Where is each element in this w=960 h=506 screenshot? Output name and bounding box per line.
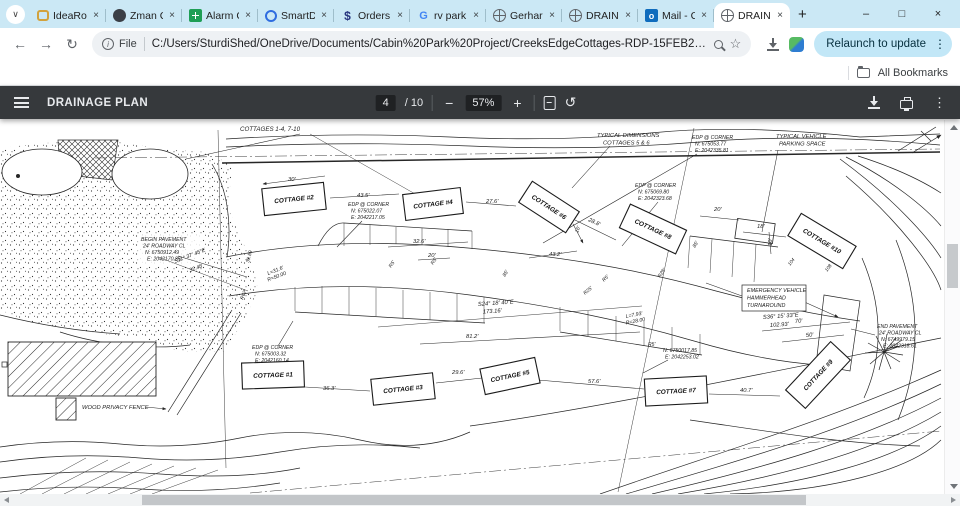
plan-annotation: 29.6' [451,370,465,376]
plan-annotation: R25' [582,285,594,297]
tab-title: Alarm C [206,10,239,22]
tab-search-button[interactable]: ∨ [6,5,25,24]
tab-drain[interactable]: DRAIN× [562,3,638,28]
pdf-document-title: DRAINAGE PLAN [47,97,148,109]
cottage-cottage2: COTTAGE #2 [262,182,326,215]
pdf-actions: ⋮ [868,95,946,111]
tab-title: DRAIN [586,10,619,22]
relaunch-label: Relaunch to update [826,38,926,50]
tab-rv-park[interactable]: Grv park× [410,3,486,28]
plan-annotation: COTTAGES 5 & 6 [603,141,650,147]
bookmark-star-icon[interactable]: ☆ [730,36,742,52]
info-icon: i [102,38,114,50]
plan-annotation: TYPICAL DIMENSIONS [597,133,660,139]
plan-annotation: E: 2042323.68 [638,196,672,202]
spreadsheet-favicon [189,9,202,22]
plan-annotation: 108 [824,263,834,273]
plan-annotation: 24' ROADWAY CL [878,331,922,337]
cottage-cottage1: COTTAGE #1 [242,361,305,389]
tab-title: IdeaRo [53,10,87,22]
all-bookmarks-button[interactable]: All Bookmarks [878,67,948,79]
tab-close-icon[interactable]: × [167,10,177,21]
chevron-down-icon: ∨ [12,9,19,20]
bookmarks-bar: All Bookmarks [0,60,960,86]
new-tab-button[interactable]: + [798,6,807,23]
bookmarks-divider [848,66,849,80]
tab-close-icon[interactable]: × [243,10,253,21]
pdf-page-controls: 4 / 10 − 57% + ↺ [376,94,577,111]
plan-annotation: 81.2' [466,334,479,340]
plan-annotation: 24' ROADWAY CL [142,244,186,250]
terrain-left [0,140,258,352]
tab-close-icon[interactable]: × [91,10,101,21]
toolbar-divider [432,95,433,111]
scroll-right-arrow-icon[interactable] [951,497,956,503]
cottage-cottage10: COTTAGE #10 [788,213,856,268]
forward-button[interactable]: → [34,32,58,56]
plan-annotation: 85' [502,268,511,278]
drainage-plan-drawing: COTTAGE #1COTTAGE #2COTTAGE #3COTTAGE #4… [0,120,944,494]
plan-annotation: N: 6749979.15 [881,337,915,343]
globe-favicon [569,9,582,22]
cottage-cottage7: COTTAGE #7 [644,376,707,406]
search-icon[interactable] [714,40,723,49]
plan-annotation: N: 675022.07 [351,209,383,215]
plan-annotation: 27.6' [485,199,499,205]
plan-annotation: 50' [806,332,815,339]
tab-title: Orders [358,10,391,22]
minimize-button[interactable]: – [848,0,884,28]
back-button[interactable]: ← [8,32,32,56]
plan-annotation: EDP @ CORNER [252,345,293,351]
plan-annotation: R28' [657,267,668,280]
pdf-download-icon[interactable] [868,96,880,109]
plan-annotation: COTTAGES 1-4, 7-10 [240,126,301,133]
print-icon[interactable] [900,100,913,109]
plan-annotation: S24° 18' 40"E [478,300,514,308]
plan-annotation: 40.7' [740,388,753,394]
plan-annotation: 85' [692,239,701,249]
chat-favicon [37,10,49,21]
plan-annotation: R5' [388,259,398,269]
tab-close-icon[interactable]: × [319,10,329,21]
plan-annotation: TYPICAL VEHICLE [776,134,827,140]
tab-close-icon[interactable]: × [775,10,785,21]
plan-annotation: E: 2042335.81 [695,148,729,154]
tab-close-icon[interactable]: × [471,10,481,21]
cottage-cottage5: COTTAGE #5 [480,357,540,394]
plan-annotation: N: 6750912.49 [145,250,179,256]
scheme-label: File [119,38,137,50]
tab-title: DRAIN [738,10,771,22]
toolbar-divider [534,95,535,111]
plan-annotation: 30' [288,177,296,183]
url-text[interactable]: C:/Users/SturdiShed/OneDrive/Documents/C… [152,38,707,50]
plan-annotation: 36.3' [323,386,336,392]
chip-divider [144,37,145,51]
plan-annotation: 16' [574,225,582,234]
scroll-up-arrow-icon[interactable] [950,125,958,130]
tab-mail-c[interactable]: oMail - C× [638,3,714,28]
page-number-input[interactable]: 4 [376,95,396,111]
rotate-icon[interactable]: ↺ [565,94,577,111]
plan-annotation: 104 [787,257,797,267]
fit-to-page-icon[interactable] [544,96,556,110]
maximize-button[interactable]: □ [884,0,920,28]
vertical-scrollbar-thumb[interactable] [947,244,958,288]
plan-annotation: 43.5' [357,193,370,199]
plan-annotation: 70' [795,318,804,325]
tab-title: Mail - C [662,10,695,22]
tab-smartd[interactable]: SmartD× [258,3,334,28]
outlook-favicon: o [645,9,658,22]
vertical-scrollbar[interactable] [944,120,960,494]
svg-text:COTTAGE #1: COTTAGE #1 [253,371,293,379]
plan-annotation: 20' [713,207,722,213]
horizontal-scrollbar-thumb[interactable] [142,495,806,505]
tab-drain[interactable]: DRAIN× [714,3,790,28]
tab-idearo[interactable]: IdeaRo× [30,3,106,28]
tab-gerhar[interactable]: Gerhar× [486,3,562,28]
cottage-cottage6: COTTAGE #6 [519,181,580,232]
plan-annotation: 102.93' [770,322,790,329]
plan-annotation: 32.6' [413,239,426,245]
browser-toolbar: ← → ↻ i File C:/Users/SturdiShed/OneDriv… [0,28,960,60]
plan-annotation: N: 675053.77 [695,142,727,148]
plan-annotation: HAMMERHEAD [747,296,786,302]
tab-close-icon[interactable]: × [547,10,557,21]
zoom-level-input[interactable]: 57% [465,95,501,111]
scroll-down-arrow-icon[interactable] [950,484,958,489]
tab-title: SmartD [281,10,315,22]
tab-strip-tabs: IdeaRo×Zman C×Alarm C×SmartD×$Orders×Grv… [30,0,790,28]
plan-annotation: S36° 15' 33"E [763,313,799,321]
smartthings-favicon [265,10,277,22]
cottage-cottage3: COTTAGE #3 [371,373,435,405]
plan-annotation: WOOD PRIVACY FENCE [82,405,149,411]
plan-annotation: E: 2042160.14 [255,358,289,364]
extension-icon[interactable] [789,37,804,52]
downloads-icon[interactable] [767,38,779,51]
plan-annotation: EDP @ CORNER [692,135,733,141]
plan-annotation: E: 2042318.61 [883,344,917,350]
tab-close-icon[interactable]: × [623,10,633,21]
plan-annotation: EDP @ CORNER [348,202,389,208]
plan-annotation: EDP @ CORNER [635,183,676,189]
cottage-cottage4: COTTAGE #4 [403,188,464,221]
pdf-more-menu-icon[interactable]: ⋮ [933,95,946,111]
pdf-toolbar: DRAINAGE PLAN 4 / 10 − 57% + ↺ ⋮ [0,86,960,119]
tab-orders[interactable]: $Orders× [334,3,410,28]
site-info-chip[interactable]: i File [102,38,137,50]
tab-zman-c[interactable]: Zman C× [106,3,182,28]
tab-title: Gerhar [510,10,543,22]
address-bar[interactable]: i File C:/Users/SturdiShed/OneDrive/Docu… [92,31,751,57]
scroll-left-arrow-icon[interactable] [4,497,9,503]
zoom-out-button[interactable]: − [442,95,456,111]
tab-title: Zman C [130,10,163,22]
plan-annotation: N: 675069.80 [638,190,669,196]
tab-strip: ∨ IdeaRo×Zman C×Alarm C×SmartD×$Orders×G… [0,0,960,28]
tab-alarm-c[interactable]: Alarm C× [182,3,258,28]
close-window-button[interactable]: × [920,0,956,28]
dollar-favicon: $ [341,9,354,22]
tab-close-icon[interactable]: × [395,10,405,21]
plan-annotation: END PAVEMENT [877,324,918,330]
pdf-viewport: COTTAGE #1COTTAGE #2COTTAGE #3COTTAGE #4… [0,120,960,506]
plan-annotation: BEGIN PAVEMENT [141,237,187,243]
globe-favicon [493,9,506,22]
plan-annotation: 57.6' [588,379,601,385]
plan-annotation: R5' [648,342,656,348]
folder-icon [857,68,870,78]
tab-title: rv park [434,10,467,22]
plan-annotation: 43.2' [549,252,562,258]
tab-close-icon[interactable]: × [699,10,709,21]
reload-button[interactable]: ↻ [60,32,84,56]
relaunch-to-update-button[interactable]: Relaunch to update ⋮ [814,31,952,57]
plan-annotation: 173.16' [483,308,503,315]
zoom-in-button[interactable]: + [510,95,524,111]
plan-annotation: EMERGENCY VEHICLE [747,288,807,294]
plan-annotation: N: 675003.32 [255,352,286,358]
plan-annotation: 10' [768,238,774,246]
page-total-label: / 10 [405,97,423,109]
plan-annotation: TURNAROUND [747,303,785,309]
plan-annotation: E: 2042253.02 [665,355,699,361]
browser-menu-icon[interactable]: ⋮ [934,37,946,51]
globe-favicon [721,9,734,22]
google-favicon: G [417,9,430,22]
pdf-page[interactable]: COTTAGE #1COTTAGE #2COTTAGE #3COTTAGE #4… [0,120,944,494]
plan-annotation: E: 2042217.05 [351,215,385,221]
plan-annotation: R5' [601,273,611,283]
horizontal-scrollbar[interactable] [0,494,960,506]
menu-icon[interactable] [14,97,29,108]
clock-favicon [113,9,126,22]
window-controls: – □ × [848,0,956,28]
plan-annotation: 18' [757,224,765,230]
plan-annotation: N: 6750017.85 [663,348,697,354]
plan-annotation: PARKING SPACE [779,142,826,148]
cottage-cottage9: COTTAGE #9 [786,342,851,409]
